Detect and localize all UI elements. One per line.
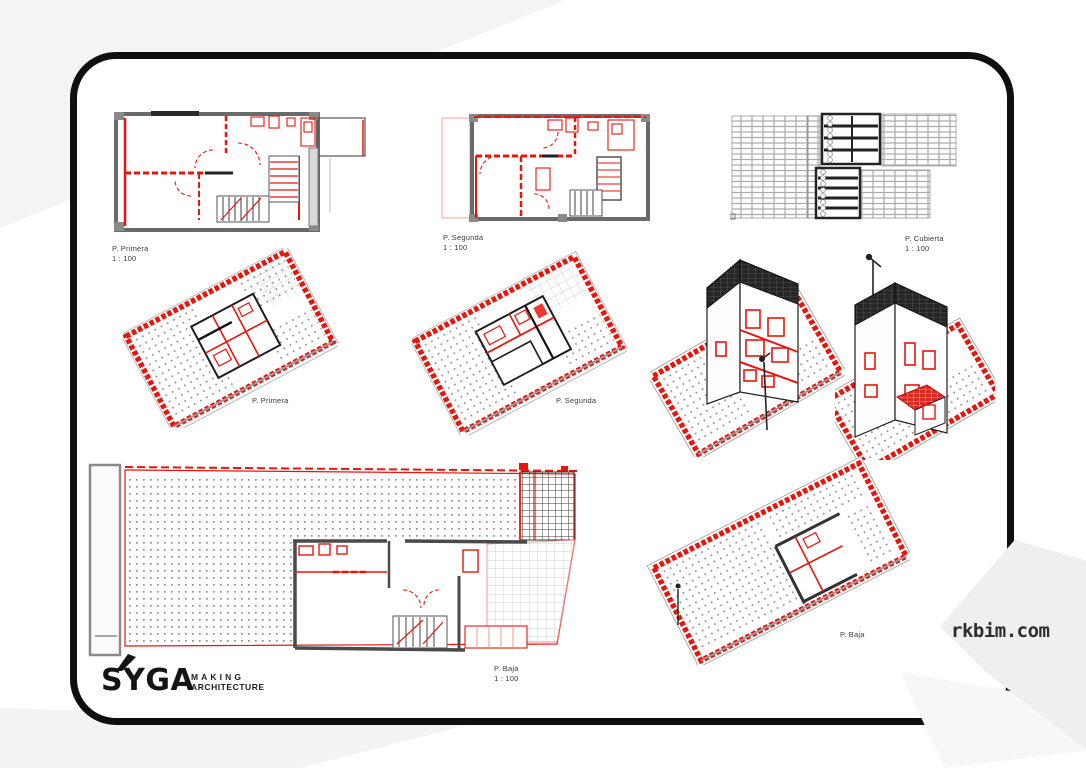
roof-plan-cubierta-figure — [730, 110, 958, 224]
logo-tagline-line2: ARCHITECTURE — [191, 682, 265, 692]
floor-plan-segunda-figure — [438, 112, 652, 224]
floor-plan-segunda-drawing — [438, 112, 652, 224]
logo-tagline-line1: MAKING — [191, 672, 265, 682]
plan-baja-title: P. Baja — [494, 664, 519, 673]
floor-plan-baja-figure — [87, 458, 587, 663]
logo-wordmark: SYGA — [101, 663, 194, 698]
axon-primera-label: P. Primera — [252, 396, 288, 406]
axon-baja-drawing — [645, 455, 910, 665]
plan-cubierta-title: P. Cubierta — [905, 234, 944, 243]
floor-plan-baja-drawing — [87, 458, 587, 663]
axon-segunda-title: P. Segunda — [556, 396, 596, 405]
syga-logo: SYGA MAKING ARCHITECTURE — [101, 655, 265, 701]
axon-baja-figure — [645, 455, 910, 665]
floor-plan-primera-figure — [113, 108, 378, 233]
axon-segunda-label: P. Segunda — [556, 396, 596, 406]
axon-building-rear-drawing — [835, 245, 995, 460]
syga-logo-mark: SYGA — [101, 655, 185, 701]
floor-plan-primera-drawing — [113, 108, 378, 233]
axon-building-rear-figure — [835, 245, 995, 460]
axon-primera-drawing — [123, 248, 338, 428]
roof-plan-cubierta-drawing — [730, 110, 958, 224]
axon-primera-title: P. Primera — [252, 396, 288, 405]
axon-baja-label: P. Baja — [840, 630, 865, 640]
plan-baja-scale: 1 : 100 — [494, 674, 519, 684]
axon-primera-figure — [123, 248, 338, 428]
watermark-text: rkbim.com — [951, 620, 1049, 642]
axon-segunda-drawing — [412, 250, 627, 435]
plan-baja-label: P. Baja 1 : 100 — [494, 664, 519, 684]
axon-baja-title: P. Baja — [840, 630, 865, 639]
axon-segunda-figure — [412, 250, 627, 435]
logo-tagline: MAKING ARCHITECTURE — [191, 672, 265, 692]
plan-segunda-title: P. Segunda — [443, 233, 483, 242]
axon-building-full-drawing — [650, 242, 845, 457]
architecture-sheet-page: P. Primera 1 : 100 — [0, 0, 1086, 768]
axon-building-full-figure — [650, 242, 845, 457]
